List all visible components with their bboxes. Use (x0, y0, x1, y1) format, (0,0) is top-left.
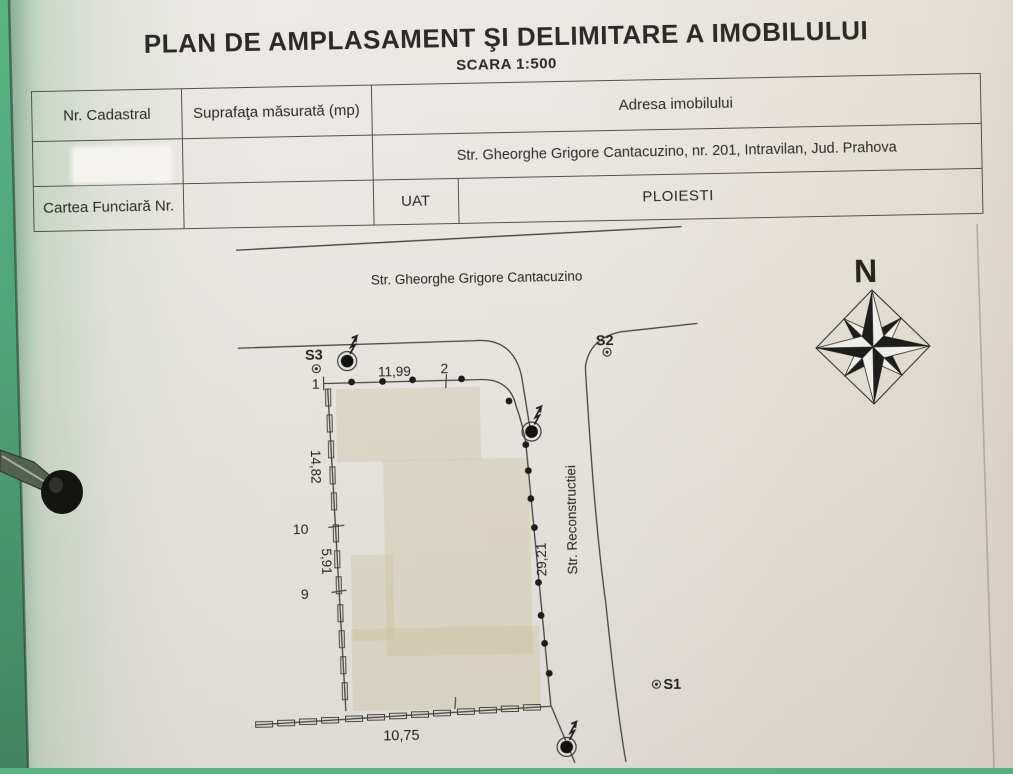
parcel-west-fence-line (328, 389, 346, 711)
street-top-near-line (238, 340, 531, 438)
uat-value: PLOIESTI (458, 170, 899, 223)
dim-east-label: 29,21 (534, 542, 550, 576)
street-top-label: Str. Gheorghe Grigore Cantacuzino (371, 269, 583, 288)
parcel-south-fence-line (256, 706, 551, 725)
west-fence-symbols (326, 389, 348, 700)
point-9-label: 9 (301, 586, 309, 602)
south-fence-symbols (255, 704, 540, 727)
measure-ticks (323, 374, 455, 711)
header-suprafata: Suprafaţa măsurată (mp) (181, 86, 372, 139)
street-right-far-line (585, 323, 706, 762)
dim-west-lower-label: 5,91 (319, 548, 335, 575)
point-1-label: 1 (312, 376, 320, 392)
uat-label: UAT (373, 178, 459, 225)
point-2-label: 2 (440, 360, 448, 376)
point-10-label: 10 (293, 521, 309, 537)
station-s1-label: S1 (663, 677, 681, 693)
north-compass-icon: N (814, 252, 931, 405)
dim-top-label: 11,99 (378, 364, 411, 380)
utility-pole-icon (337, 336, 357, 371)
north-letter: N (854, 253, 878, 289)
parcel-north-boundary (324, 379, 526, 447)
station-markers (312, 347, 660, 695)
utility-pole-icon (557, 722, 577, 757)
document-content: PLAN DE AMPLASAMENT ŞI DELIMITARE A IMOB… (0, 0, 1013, 774)
building-footprints (336, 386, 541, 712)
station-s2-label: S2 (596, 333, 614, 349)
cadastral-table: Nr. Cadastral Suprafaţa măsurată (mp) Ad… (31, 73, 984, 232)
redacted-cadastral-number (73, 146, 171, 182)
cartea-funciara-label: Cartea Funciară Nr. (34, 183, 184, 231)
parcel-east-boundary (526, 442, 575, 764)
dim-bottom-label: 10,75 (383, 728, 420, 745)
street-top-far-line (236, 227, 682, 251)
header-nr-cadastral: Nr. Cadastral (32, 89, 182, 141)
dim-west-upper-label: 14,82 (308, 450, 324, 484)
utility-pole-icon (522, 406, 542, 441)
station-s3-label: S3 (305, 348, 323, 364)
street-right-label: Str. Reconstructiei (563, 465, 580, 575)
boundary-point-dots (348, 374, 553, 681)
